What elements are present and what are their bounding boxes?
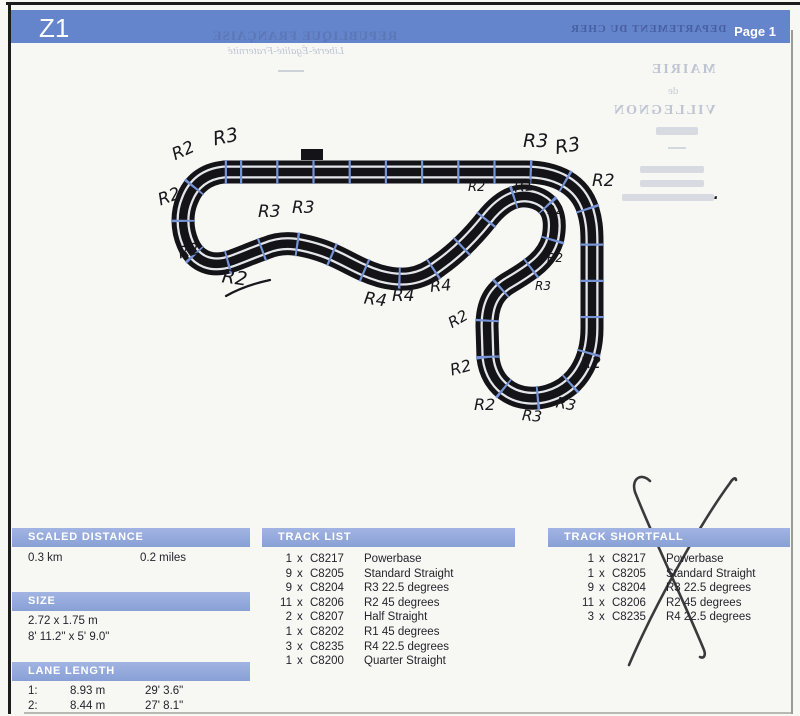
part-qty: 2 bbox=[262, 611, 292, 623]
size-title: SIZE bbox=[28, 595, 56, 607]
part-code: C8206 bbox=[310, 597, 344, 609]
part-list-row: 11xC8206R2 45 degrees bbox=[548, 597, 798, 611]
times-label: x bbox=[297, 568, 303, 580]
part-list-row: 1xC8200Quarter Straight bbox=[262, 655, 512, 669]
lane-number: 1: bbox=[28, 685, 38, 697]
size-header: SIZE bbox=[12, 592, 250, 611]
part-code: C8207 bbox=[310, 611, 344, 623]
times-label: x bbox=[599, 568, 605, 580]
part-code: C8205 bbox=[612, 568, 646, 580]
powerbase-tab bbox=[301, 149, 323, 160]
part-name: R4 22.5 degrees bbox=[666, 611, 751, 623]
track-annotation: R3 bbox=[523, 130, 548, 152]
track-annotation: R4 bbox=[363, 289, 388, 312]
part-list-row: 1xC8202R1 45 degrees bbox=[262, 626, 512, 640]
times-label: x bbox=[599, 582, 605, 594]
times-label: x bbox=[599, 597, 605, 609]
scaled-distance-header: SCALED DISTANCE bbox=[12, 528, 250, 547]
track-annotation: R3 bbox=[535, 279, 551, 293]
part-list-row: 2xC8207Half Straight bbox=[262, 611, 512, 625]
part-list-row: 11xC8206R2 45 degrees bbox=[262, 597, 512, 611]
part-name: R4 22.5 degrees bbox=[364, 641, 449, 653]
track-annotation: R4 bbox=[392, 286, 415, 306]
part-list-row: 1xC8217Powerbase bbox=[548, 553, 798, 567]
part-name: Half Straight bbox=[364, 611, 427, 623]
part-name: R3 22.5 degrees bbox=[666, 582, 751, 594]
part-list-row: 9xC8204R3 22.5 degrees bbox=[548, 582, 798, 596]
scaled-distance-km: 0.3 km bbox=[28, 552, 63, 564]
scaled-distance-miles: 0.2 miles bbox=[140, 552, 186, 564]
part-code: C8205 bbox=[310, 568, 344, 580]
lane-length-row: 2:8.44 m27' 8.1" bbox=[28, 700, 258, 714]
track-annotation: R2 bbox=[474, 395, 495, 414]
part-code: C8200 bbox=[310, 655, 344, 667]
times-label: x bbox=[297, 553, 303, 565]
part-qty: 9 bbox=[262, 582, 292, 594]
times-label: x bbox=[599, 553, 605, 565]
size-metric: 2.72 x 1.75 m bbox=[28, 615, 98, 627]
part-qty: 1 bbox=[262, 655, 292, 667]
scaled-distance-title: SCALED DISTANCE bbox=[28, 531, 144, 543]
track-annotation: R2 bbox=[592, 171, 615, 191]
part-qty: 11 bbox=[548, 597, 594, 609]
part-qty: 9 bbox=[262, 568, 292, 580]
part-qty: 9 bbox=[548, 582, 594, 594]
part-code: C8235 bbox=[310, 641, 344, 653]
track-shortfall-title: TRACK SHORTFALL bbox=[564, 531, 684, 543]
part-qty: 1 bbox=[548, 568, 594, 580]
size-imperial: 8' 11.2" x 5' 9.0" bbox=[28, 631, 109, 643]
part-list-row: 3xC8235R4 22.5 degrees bbox=[262, 641, 512, 655]
part-code: C8202 bbox=[310, 626, 344, 638]
part-code: C8204 bbox=[612, 582, 646, 594]
lane-imperial: 29' 3.6" bbox=[145, 685, 183, 697]
track-annotation: . bbox=[713, 180, 720, 205]
part-qty: 3 bbox=[262, 641, 292, 653]
part-name: Powerbase bbox=[364, 553, 422, 565]
part-list-row: 1xC8205Standard Straight bbox=[548, 568, 798, 582]
track-list-title: TRACK LIST bbox=[278, 531, 351, 543]
track-annotation: R2 bbox=[221, 265, 249, 290]
times-label: x bbox=[297, 626, 303, 638]
track-annotation: R2 bbox=[468, 180, 485, 195]
part-name: Powerbase bbox=[666, 553, 724, 565]
lane-imperial: 27' 8.1" bbox=[145, 700, 183, 712]
part-list-row: 1xC8217Powerbase bbox=[262, 553, 512, 567]
lane-length-title: LANE LENGTH bbox=[28, 665, 115, 677]
part-list-row: 3xC8235R4 22.5 degrees bbox=[548, 611, 798, 625]
part-qty: 1 bbox=[262, 553, 292, 565]
part-list-row: 9xC8205Standard Straight bbox=[262, 568, 512, 582]
part-qty: 1 bbox=[548, 553, 594, 565]
track-shortfall-header: TRACK SHORTFALL bbox=[548, 528, 790, 547]
times-label: x bbox=[297, 597, 303, 609]
track-annotation: R3 bbox=[555, 393, 578, 414]
part-name: Quarter Straight bbox=[364, 655, 446, 667]
track-annotation: R4 bbox=[429, 275, 452, 296]
scanned-page: Z1 Page 1 REPUBLIQUE FRANÇAISE Liberté-É… bbox=[0, 0, 800, 716]
part-code: C8235 bbox=[612, 611, 646, 623]
times-label: x bbox=[297, 655, 303, 667]
part-code: C8217 bbox=[612, 553, 646, 565]
track-annotation: R2 bbox=[580, 353, 601, 372]
track-annotation: R1 bbox=[513, 176, 534, 196]
part-code: C8206 bbox=[612, 597, 646, 609]
times-label: x bbox=[599, 611, 605, 623]
track-annotation: R3 bbox=[292, 198, 315, 218]
part-qty: 3 bbox=[548, 611, 594, 623]
track-annotation: R2 bbox=[547, 251, 563, 265]
track-annotation: R2 bbox=[547, 203, 563, 217]
part-code: C8217 bbox=[310, 553, 344, 565]
lane-metric: 8.93 m bbox=[70, 685, 105, 697]
lane-metric: 8.44 m bbox=[70, 700, 105, 712]
track-list-header: TRACK LIST bbox=[262, 528, 515, 547]
part-qty: 11 bbox=[262, 597, 292, 609]
lane-number: 2: bbox=[28, 700, 38, 712]
part-list-row: 9xC8204R3 22.5 degrees bbox=[262, 582, 512, 596]
track-annotation: R3 bbox=[258, 202, 281, 222]
part-name: R2 45 degrees bbox=[364, 597, 439, 609]
lane-length-row: 1:8.93 m29' 3.6" bbox=[28, 685, 258, 699]
part-name: R1 45 degrees bbox=[364, 626, 439, 638]
part-name: R3 22.5 degrees bbox=[364, 582, 449, 594]
part-name: R2 45 degrees bbox=[666, 597, 741, 609]
part-code: C8204 bbox=[310, 582, 344, 594]
times-label: x bbox=[297, 611, 303, 623]
part-name: Standard Straight bbox=[666, 568, 756, 580]
part-qty: 1 bbox=[262, 626, 292, 638]
part-name: Standard Straight bbox=[364, 568, 454, 580]
times-label: x bbox=[297, 641, 303, 653]
lane-length-header: LANE LENGTH bbox=[12, 662, 250, 681]
track-annotation: R3 bbox=[553, 133, 582, 159]
times-label: x bbox=[297, 582, 303, 594]
track-annotation: R3 bbox=[521, 406, 542, 426]
